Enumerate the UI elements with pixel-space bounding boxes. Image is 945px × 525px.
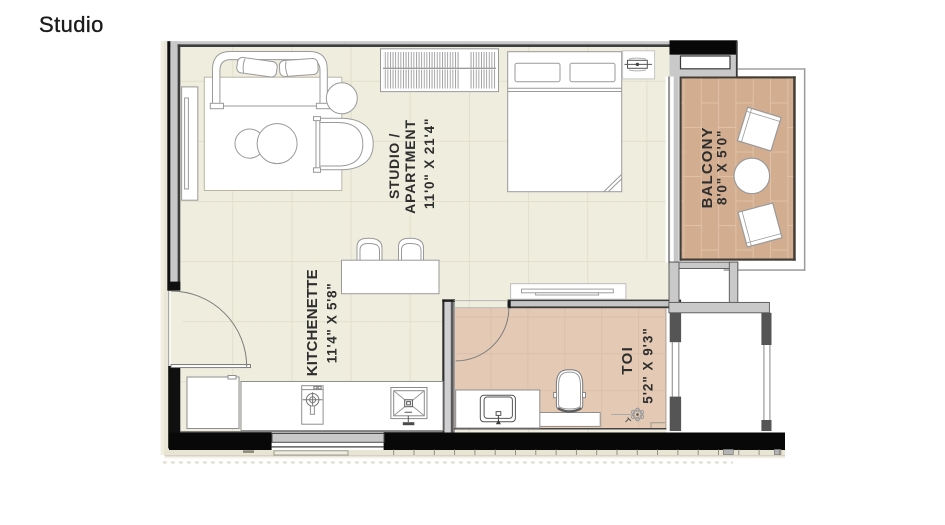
svg-text:5'2" X 9'3": 5'2" X 9'3"	[640, 328, 655, 404]
svg-text:11'4" X 5'8": 11'4" X 5'8"	[324, 283, 339, 363]
svg-text:11'0" X 21'4": 11'0" X 21'4"	[422, 119, 437, 209]
svg-text:KITCHENETTE: KITCHENETTE	[304, 269, 321, 376]
svg-text:APARTMENT: APARTMENT	[402, 119, 418, 213]
svg-text:8'0" X 5'0": 8'0" X 5'0"	[714, 131, 729, 205]
svg-text:STUDIO /: STUDIO /	[386, 133, 402, 199]
svg-text:TOI: TOI	[619, 347, 636, 374]
svg-text:BALCONY: BALCONY	[699, 127, 716, 208]
